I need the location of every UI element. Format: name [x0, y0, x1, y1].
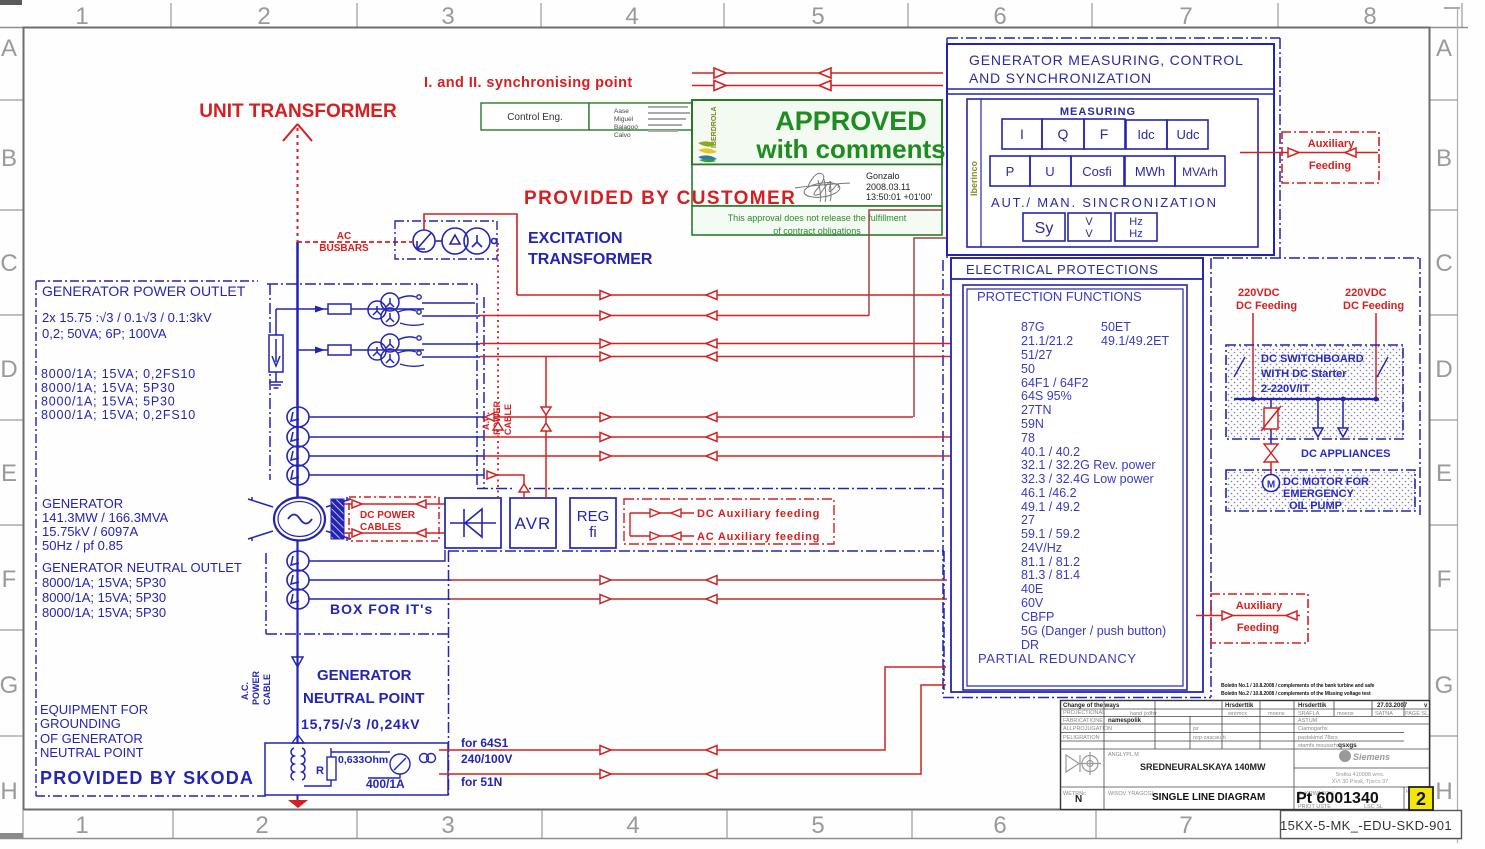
svg-text:8000/1A; 15VA; 5P30: 8000/1A; 15VA; 5P30 [42, 575, 166, 590]
svg-text:Feeding: Feeding [1309, 160, 1351, 172]
svg-text:59.1 / 59.2: 59.1 / 59.2 [1021, 527, 1080, 541]
svg-text:CABLES: CABLES [360, 522, 401, 533]
svg-text:fi: fi [589, 524, 597, 541]
svg-text:2: 2 [257, 3, 270, 30]
svg-text:CBFP: CBFP [1021, 610, 1054, 624]
svg-text:D: D [0, 356, 17, 383]
svg-text:50: 50 [1021, 362, 1035, 376]
svg-text:AUT./ MAN. SINCRONIZATION: AUT./ MAN. SINCRONIZATION [991, 195, 1218, 210]
svg-text:PROJECTIONAL: PROJECTIONAL [1063, 710, 1105, 716]
svg-text:7: 7 [1179, 3, 1192, 30]
svg-text:64F1 / 64F2: 64F1 / 64F2 [1021, 376, 1088, 390]
svg-text:namespolik: namespolik [1108, 718, 1142, 724]
svg-text:nsp-zascaurti: nsp-zascaurti [1193, 735, 1226, 741]
svg-text:U: U [1045, 164, 1054, 179]
svg-text:APPROVED: APPROVED [775, 106, 927, 136]
svg-text:MVArh: MVArh [1182, 165, 1218, 179]
svg-text:GENERATOR: GENERATOR [42, 496, 123, 511]
svg-text:40.1 / 40.2: 40.1 / 40.2 [1021, 445, 1080, 459]
svg-text:A: A [1436, 35, 1452, 62]
svg-text:R: R [316, 765, 324, 777]
svg-text:REG: REG [577, 508, 610, 525]
svg-text:8000/1A; 15VA; 5P30: 8000/1A; 15VA; 5P30 [41, 381, 176, 395]
svg-text:GENERATOR NEUTRAL OUTLET: GENERATOR NEUTRAL OUTLET [42, 560, 242, 575]
svg-text:EXCITATION: EXCITATION [528, 230, 623, 247]
svg-text:5: 5 [811, 812, 824, 839]
svg-text:21.1/21.2: 21.1/21.2 [1021, 334, 1073, 348]
svg-text:N: N [1075, 794, 1082, 805]
svg-text:EQUIPMENT FOR: EQUIPMENT FOR [40, 702, 148, 717]
svg-text:PROTECTION FUNCTIONS: PROTECTION FUNCTIONS [977, 289, 1142, 304]
svg-text:DC MOTOR FOR: DC MOTOR FOR [1283, 476, 1369, 488]
svg-text:2: 2 [255, 812, 268, 839]
svg-text:E: E [1436, 460, 1452, 487]
svg-text:NEUTRAL POINT: NEUTRAL POINT [40, 745, 144, 760]
svg-text:ELECTRICAL PROTECTIONS: ELECTRICAL PROTECTIONS [966, 262, 1159, 277]
svg-text:AC Auxiliary feeding: AC Auxiliary feeding [697, 531, 820, 543]
svg-text:XVI 30 Plsvk, Tjsrcs 97: XVI 30 Plsvk, Tjsrcs 97 [1332, 779, 1388, 785]
svg-text:2008.03.11: 2008.03.11 [866, 182, 910, 192]
svg-text:49.1 / 49.2: 49.1 / 49.2 [1021, 500, 1080, 514]
svg-text:40E: 40E [1021, 582, 1043, 596]
svg-text:3: 3 [441, 3, 454, 30]
svg-text:59N: 59N [1021, 417, 1044, 431]
svg-text:1: 1 [75, 3, 88, 30]
svg-text:15KX-5-MK_-EDU-SKD-901: 15KX-5-MK_-EDU-SKD-901 [1280, 818, 1452, 833]
svg-text:87G: 87G [1021, 320, 1045, 334]
svg-text:ANGLYPL M: ANGLYPL M [1108, 752, 1139, 758]
svg-text:81.3 / 81.4: 81.3 / 81.4 [1021, 568, 1080, 582]
svg-text:DC Feeding: DC Feeding [1236, 300, 1297, 312]
svg-text:8000/1A; 15VA; 0,2FS10: 8000/1A; 15VA; 0,2FS10 [41, 408, 196, 422]
svg-text:64S 95%: 64S 95% [1021, 389, 1072, 403]
svg-text:EMERGENCY: EMERGENCY [1283, 488, 1355, 500]
svg-text:Iberinco: Iberinco [969, 160, 979, 196]
svg-text:400/1A: 400/1A [366, 777, 405, 791]
svg-text:6: 6 [993, 812, 1006, 839]
svg-text:I: I [1020, 126, 1024, 142]
svg-text:240/100V: 240/100V [461, 752, 512, 766]
svg-text:50Hz / pf 0.85: 50Hz / pf 0.85 [42, 538, 123, 553]
svg-text:BOX FOR IT's: BOX FOR IT's [330, 601, 433, 617]
svg-text:F: F [1100, 126, 1109, 142]
svg-text:H: H [0, 778, 17, 805]
svg-text:moens: moens [1268, 711, 1285, 717]
svg-text:UNIT TRANSFORMER: UNIT TRANSFORMER [199, 101, 397, 122]
svg-text:Miguel: Miguel [614, 116, 634, 123]
svg-text:Balagoó: Balagoó [614, 124, 638, 131]
svg-text:E: E [1, 460, 17, 487]
svg-text:8000/1A; 15VA; 5P30: 8000/1A; 15VA; 5P30 [42, 605, 166, 620]
svg-text:PELIGRATION: PELIGRATION [1063, 735, 1100, 741]
svg-text:SREDNEURALSKAYA 140MW: SREDNEURALSKAYA 140MW [1140, 762, 1266, 772]
svg-text:B: B [1436, 145, 1452, 172]
svg-text:GENERATOR MEASURING, CONTROL: GENERATOR MEASURING, CONTROL [969, 52, 1244, 68]
svg-text:0,633Ohm: 0,633Ohm [338, 754, 388, 766]
svg-text:50ET: 50ET [1101, 320, 1131, 334]
svg-text:P: P [1006, 164, 1015, 179]
svg-text:Udc: Udc [1176, 127, 1200, 142]
svg-text:15.75kV / 6097A: 15.75kV / 6097A [42, 524, 138, 539]
svg-text:1: 1 [75, 812, 88, 839]
svg-text:Auxiliary: Auxiliary [1308, 138, 1355, 150]
svg-text:141.3MW / 166.3MVA: 141.3MW / 166.3MVA [42, 510, 169, 525]
svg-text:27.03.2007: 27.03.2007 [1377, 703, 1408, 709]
svg-text:8000/1A; 15VA; 5P30: 8000/1A; 15VA; 5P30 [41, 395, 176, 409]
svg-text:Ciamogarhx: Ciamogarhx [1298, 726, 1328, 732]
svg-text:G: G [1435, 672, 1454, 699]
svg-text:8000/1A; 15VA; 0,2FS10: 8000/1A; 15VA; 0,2FS10 [41, 367, 196, 381]
svg-text:ASTUM: ASTUM [1298, 718, 1318, 724]
svg-text:Hz: Hz [1129, 216, 1142, 228]
svg-text:46.1 /46.2: 46.1 /46.2 [1021, 486, 1077, 500]
svg-text:Change of the ways: Change of the ways [1063, 703, 1120, 709]
svg-text:5: 5 [811, 3, 824, 30]
svg-text:81.1 / 81.2: 81.1 / 81.2 [1021, 555, 1080, 569]
svg-text:Aase: Aase [614, 108, 629, 115]
svg-text:ALLPROJUGATION: ALLPROJUGATION [1063, 726, 1112, 732]
svg-text:I. and II. synchronising p: I. and II. synchronising point [424, 75, 633, 91]
svg-text:Calvo: Calvo [614, 132, 631, 139]
svg-text:AND SYNCHRONIZATION: AND SYNCHRONIZATION [969, 70, 1152, 86]
svg-text:jsr: jsr [1192, 726, 1199, 732]
svg-text:WISOV YRAGCGL: WISOV YRAGCGL [1108, 791, 1155, 797]
svg-text:Feeding: Feeding [1237, 622, 1279, 634]
svg-text:POWER: POWER [251, 670, 261, 705]
svg-text:27: 27 [1021, 513, 1035, 527]
svg-text:2-220V/IT: 2-220V/IT [1261, 383, 1310, 395]
svg-text:GENERATOR POWER OUTLET: GENERATOR POWER OUTLET [42, 283, 246, 299]
svg-text:Boletin No.1 / 10.8.2008 / com: Boletin No.1 / 10.8.2008 / complements o… [1221, 683, 1375, 689]
svg-text:for 51N: for 51N [461, 775, 502, 789]
svg-text:MEASURING: MEASURING [1060, 106, 1136, 118]
svg-text:8000/1A; 15VA; 5P30: 8000/1A; 15VA; 5P30 [42, 590, 166, 605]
svg-text:for 64S1: for 64S1 [461, 736, 509, 750]
svg-text:DC POWER: DC POWER [360, 510, 416, 521]
svg-text:PARTIAL REDUNDANCY: PARTIAL REDUNDANCY [978, 651, 1137, 666]
svg-text:SINGLE LINE DIAGRAM: SINGLE LINE DIAGRAM [1152, 792, 1265, 803]
svg-text:Sy: Sy [1035, 220, 1054, 237]
svg-text:60V: 60V [1021, 596, 1044, 610]
svg-text:Auxiliary: Auxiliary [1236, 600, 1283, 612]
svg-text:M: M [1267, 480, 1275, 491]
svg-text:DC APPLIANCES: DC APPLIANCES [1301, 448, 1390, 460]
svg-text:hand jxdfsr: hand jxdfsr [1130, 711, 1157, 717]
svg-text:pastskimd 78srs: pastskimd 78srs [1298, 735, 1338, 741]
svg-text:of contract obligations: of contract obligations [773, 226, 861, 236]
svg-text:2x 15.75 :√3 / 0.1√3 / 0.1:3kV: 2x 15.75 :√3 / 0.1√3 / 0.1:3kV [42, 310, 212, 325]
svg-text:DC Auxiliary feeding: DC Auxiliary feeding [697, 508, 820, 520]
svg-text:78: 78 [1021, 431, 1035, 445]
svg-text:GENERATOR: GENERATOR [317, 667, 412, 684]
svg-text:A.C.: A.C. [240, 682, 250, 700]
svg-text:SRAFLA: SRAFLA [1298, 711, 1320, 717]
svg-text:stamfs moussrhx: stamfs moussrhx [1298, 743, 1340, 749]
svg-text:Pt 6001340: Pt 6001340 [1296, 790, 1379, 807]
svg-text:D: D [1435, 356, 1452, 383]
svg-text:B: B [1, 145, 17, 172]
svg-text:CABLE: CABLE [503, 404, 513, 435]
svg-text:DC Feeding: DC Feeding [1343, 300, 1404, 312]
svg-text:Control Eng.: Control Eng. [507, 112, 563, 123]
svg-text:IBERDROLA: IBERDROLA [711, 106, 718, 148]
svg-text:C: C [1435, 250, 1452, 277]
svg-text:PROVIDED BY SKODA: PROVIDED BY SKODA [40, 768, 254, 788]
svg-text:8: 8 [1363, 3, 1376, 30]
svg-text:3: 3 [441, 812, 454, 839]
svg-text:qsxgs: qsxgs [1338, 742, 1357, 749]
svg-text:OIL PUMP: OIL PUMP [1289, 500, 1342, 512]
svg-text:AVR: AVR [515, 514, 552, 533]
svg-text:wremcx: wremcx [1227, 711, 1247, 717]
svg-text:0,2; 50VA; 6P; 100VA: 0,2; 50VA; 6P; 100VA [42, 326, 167, 341]
svg-text:BUSBARS: BUSBARS [319, 243, 369, 254]
svg-text:MWh: MWh [1135, 164, 1165, 179]
svg-text:220VDC: 220VDC [1345, 287, 1387, 299]
svg-text:4: 4 [626, 812, 639, 839]
svg-text:49.1/49.2ET: 49.1/49.2ET [1101, 334, 1169, 348]
svg-text:PROVIDED BY CUSTOMER: PROVIDED BY CUSTOMER [524, 188, 796, 209]
svg-text:4: 4 [625, 3, 638, 30]
svg-text:V: V [1085, 228, 1093, 240]
svg-text:TRANSFORMER: TRANSFORMER [528, 251, 653, 268]
svg-text:F: F [1437, 566, 1452, 593]
svg-text:DC SWITCHBOARD: DC SWITCHBOARD [1261, 353, 1364, 365]
svg-text:6: 6 [993, 3, 1006, 30]
svg-text:Srstka 410008 wrrs.: Srstka 410008 wrrs. [1336, 772, 1385, 778]
svg-text:DR: DR [1021, 638, 1039, 652]
svg-text:32.1 / 32.2G Rev. power: 32.1 / 32.2G Rev. power [1021, 458, 1156, 472]
svg-text:with comments: with comments [755, 134, 945, 164]
svg-text:PAGE SL: PAGE SL [1405, 711, 1428, 717]
svg-text:AC: AC [337, 231, 351, 242]
svg-text:32.3 / 32.4G Low power: 32.3 / 32.4G Low power [1021, 472, 1154, 486]
svg-text:WITH DC Starter: WITH DC Starter [1261, 368, 1347, 380]
svg-text:Boletin No.2 / 10.8.2008 / com: Boletin No.2 / 10.8.2008 / complements o… [1221, 691, 1371, 697]
svg-text:OF GENERATOR: OF GENERATOR [40, 731, 143, 746]
svg-text:H: H [1435, 778, 1452, 805]
svg-text:CABLE: CABLE [262, 674, 272, 705]
svg-text:7: 7 [1179, 812, 1192, 839]
svg-text:220VDC: 220VDC [1238, 287, 1280, 299]
svg-text:Hrsderttik: Hrsderttik [1225, 703, 1254, 709]
svg-text:A: A [1, 35, 17, 62]
svg-text:This approval does not release: This approval does not release the fulfi… [728, 213, 907, 223]
svg-text:NEUTRAL POINT: NEUTRAL POINT [303, 690, 424, 707]
svg-text:13:50:01 +01'00': 13:50:01 +01'00' [866, 192, 933, 202]
svg-text:C: C [0, 250, 17, 277]
svg-text:Siemens: Siemens [1353, 752, 1390, 762]
svg-text:Q: Q [1058, 126, 1069, 142]
svg-text:Gonzalo: Gonzalo [866, 171, 900, 181]
svg-text:FABRICATIONE: FABRICATIONE [1063, 718, 1103, 724]
svg-text:15,75/√3 /0,24kV: 15,75/√3 /0,24kV [301, 716, 420, 732]
svg-text:51/27: 51/27 [1021, 348, 1052, 362]
svg-text:24V/Hz: 24V/Hz [1021, 541, 1062, 555]
svg-text:moens: moens [1337, 711, 1354, 717]
svg-text:Hrsderttik: Hrsderttik [1298, 703, 1327, 709]
svg-text:V: V [1085, 216, 1093, 228]
svg-text:5G (Danger / push button): 5G (Danger / push button) [1021, 624, 1166, 638]
svg-text:SATNA: SATNA [1375, 711, 1393, 717]
svg-text:Hz: Hz [1129, 228, 1142, 240]
svg-text:GROUNDING: GROUNDING [40, 716, 121, 731]
svg-text:Idc: Idc [1137, 127, 1155, 142]
svg-text:2: 2 [1416, 789, 1426, 809]
svg-text:G: G [0, 672, 18, 699]
svg-text:Cosfi: Cosfi [1082, 164, 1112, 179]
svg-text:F: F [2, 566, 17, 593]
svg-text:27TN: 27TN [1021, 403, 1052, 417]
